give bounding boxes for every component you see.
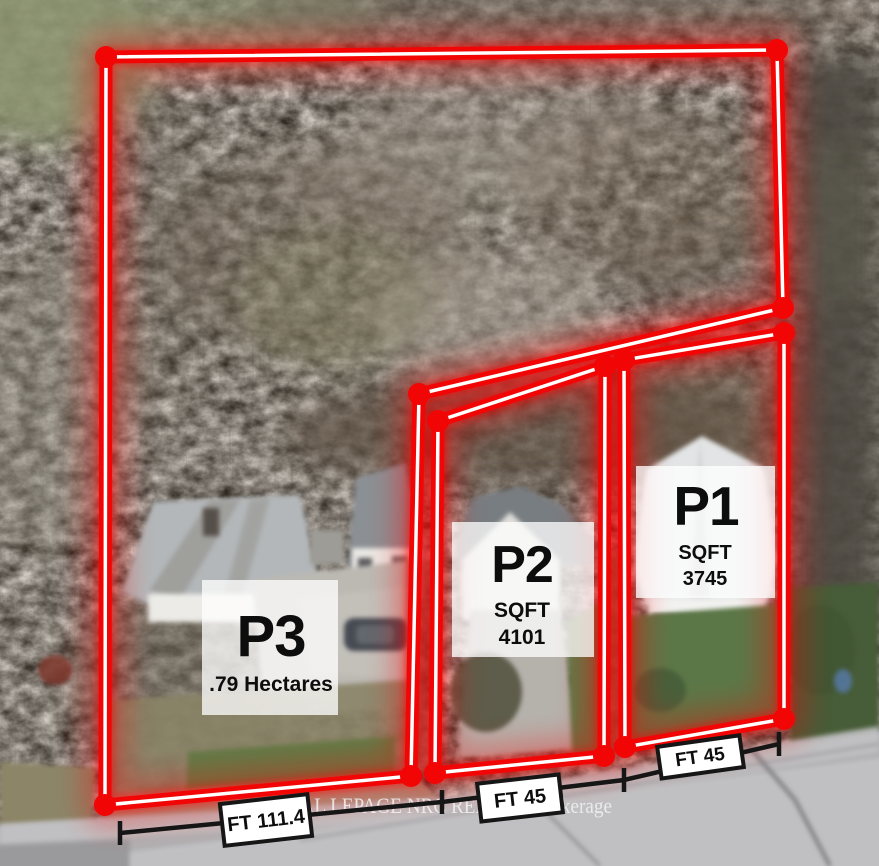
svg-text:P1: P1 xyxy=(673,475,739,537)
svg-text:SQFT: SQFT xyxy=(494,599,550,622)
svg-text:P3: P3 xyxy=(237,604,306,669)
svg-text:P2: P2 xyxy=(491,536,553,594)
svg-text:SQFT: SQFT xyxy=(678,542,731,564)
svg-text:4101: 4101 xyxy=(499,626,546,649)
svg-text:.79 Hectares: .79 Hectares xyxy=(209,673,333,696)
svg-text:3745: 3745 xyxy=(683,568,728,590)
